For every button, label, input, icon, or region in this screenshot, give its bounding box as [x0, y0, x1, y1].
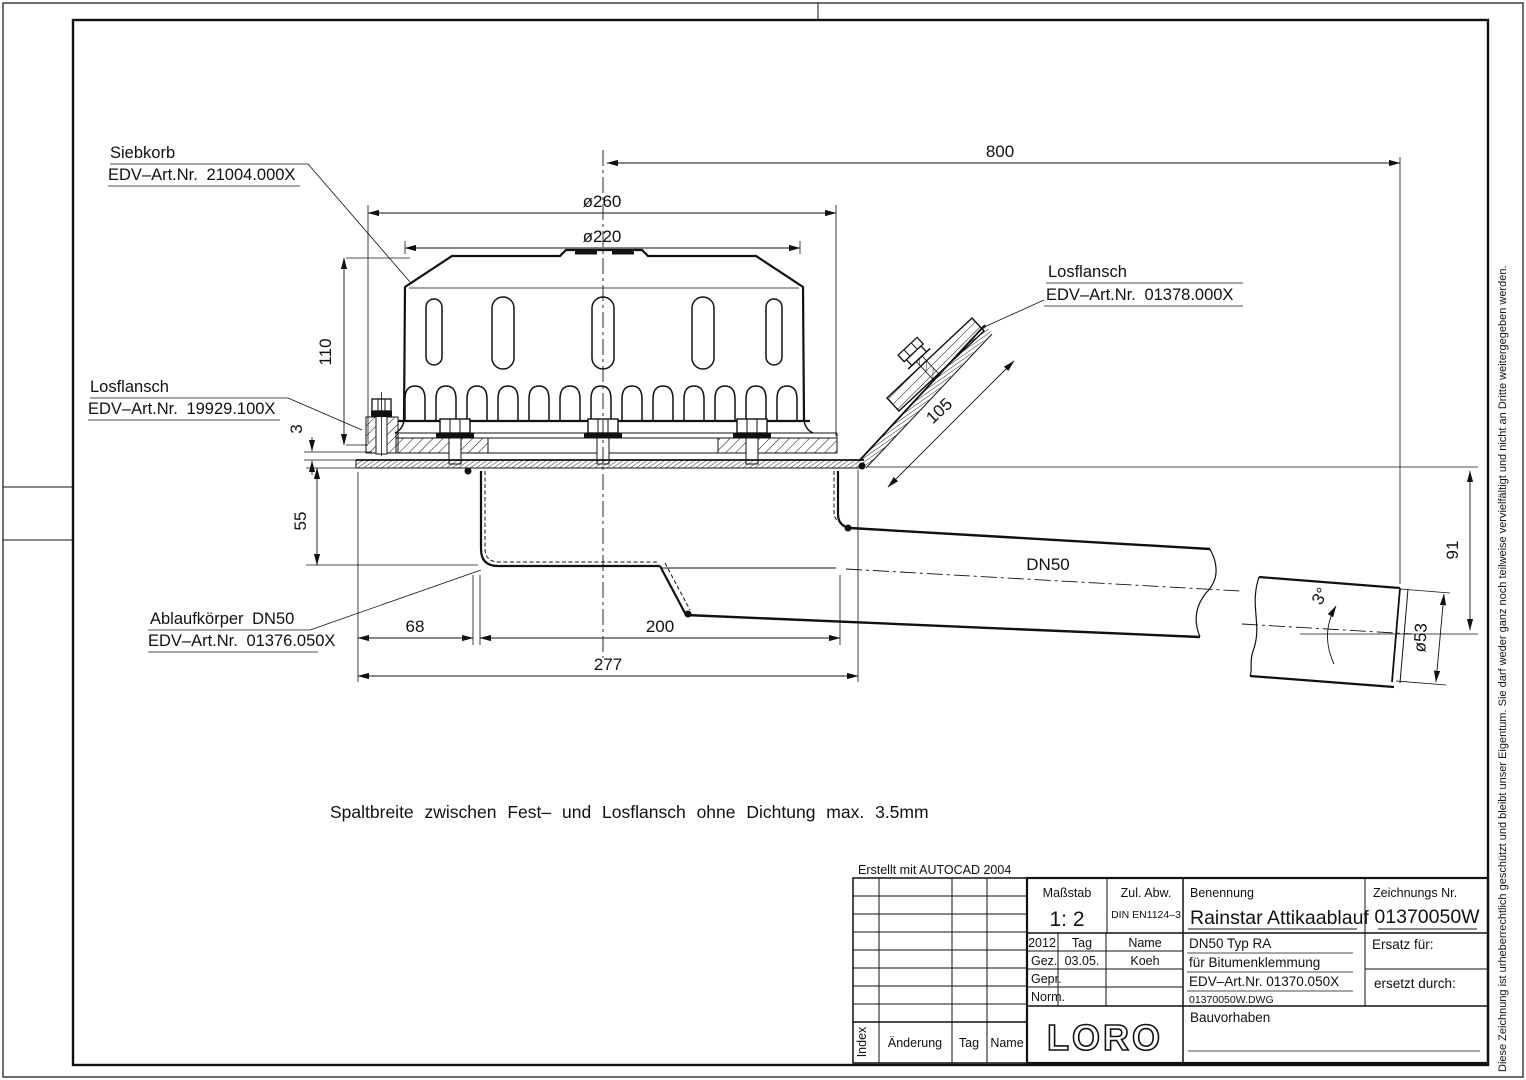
gepr-label: Gepr. [1031, 972, 1062, 986]
label-losflansch-left-name: Losflansch [90, 378, 169, 396]
title-block: Erstellt mit AUTOCAD 2004 Index Änderung… [853, 863, 1488, 1063]
approval-year: 2012 [1028, 936, 1056, 950]
rev-col-name: Name [990, 1036, 1023, 1050]
dim-91: 91 [1443, 541, 1462, 560]
label-losflansch-left: Losflansch EDV–Art.Nr. 19929.100X [88, 378, 362, 430]
dim-200: 200 [646, 617, 674, 636]
label-siebkorb: Siebkorb EDV–Art.Nr. 21004.000X [108, 144, 410, 282]
label-ablaufkoerper-artnr: EDV–Art.Nr. 01376.050X [148, 632, 335, 650]
label-losflansch-right-name: Losflansch [1048, 263, 1127, 281]
losflansch-strip [887, 318, 984, 411]
clamp-bolt-left [366, 392, 398, 456]
ersetzt-durch-label: ersetzt durch: [1374, 976, 1456, 991]
created-with-note: Erstellt mit AUTOCAD 2004 [858, 863, 1011, 877]
gez-date: 03.05. [1065, 954, 1100, 968]
label-losflansch-right: Losflansch EDV–Art.Nr. 01378.000X [982, 263, 1243, 328]
label-losflansch-right-artnr: EDV–Art.Nr. 01378.000X [1046, 286, 1233, 304]
dim-110: 110 [316, 338, 335, 365]
roof-deck [356, 460, 864, 468]
benennung-value: Rainstar Attikaablauf [1190, 907, 1369, 929]
revision-table: Index Änderung Tag Name [853, 878, 1027, 1063]
drawing-sheet: 800 ø260 ø220 110 3 55 68 2 [0, 0, 1526, 1080]
norm-label: Norm. [1031, 990, 1065, 1004]
part-labels: Siebkorb EDV–Art.Nr. 21004.000X Losflans… [88, 144, 1243, 822]
label-losflansch-left-artnr: EDV–Art.Nr. 19929.100X [88, 400, 275, 418]
siebkorb-outline [395, 250, 813, 433]
pipe-end-detail [1242, 577, 1478, 687]
rev-col-index: Index [855, 1026, 869, 1057]
zul-abw-label: Zul. Abw. [1121, 886, 1172, 900]
massstab-label: Maßstab [1043, 886, 1092, 900]
label-ablaufkoerper: Ablaufkörper DN50 EDV–Art.Nr. 01376.050X [148, 570, 481, 652]
zeichnungsnr-value: 01370050W [1374, 906, 1480, 928]
approval-col-name: Name [1128, 936, 1161, 950]
ablaufkoerper-body [465, 463, 866, 618]
dimensions: 800 ø260 ø220 110 3 55 68 2 [287, 142, 1478, 685]
parapet-wall [859, 325, 992, 468]
pipe-label-dn50: DN50 [1026, 555, 1069, 574]
siebkorb-slots [426, 297, 782, 369]
dim-53: ø53 [1410, 623, 1431, 653]
pipe-dn50 [686, 528, 1240, 637]
gez-name: Koeh [1130, 954, 1159, 968]
dim-3: 3 [287, 424, 306, 433]
label-siebkorb-name: Siebkorb [110, 144, 175, 162]
loro-logo: LORO [1047, 1017, 1163, 1058]
dim-277: 277 [594, 655, 622, 674]
dim-55: 55 [291, 512, 310, 531]
approval-col-tag: Tag [1072, 936, 1092, 950]
dim-260: ø260 [583, 192, 622, 211]
rev-col-tag: Tag [959, 1036, 979, 1050]
dim-220: ø220 [583, 227, 622, 246]
gap-note: Spaltbreite zwischen Fest– und Losflansc… [330, 802, 929, 822]
zul-abw-value: DIN EN1124–3 [1111, 909, 1181, 921]
dim-68: 68 [406, 617, 425, 636]
product-type: DN50 Typ RA [1189, 936, 1271, 951]
zeichnungsnr-label: Zeichnungs Nr. [1373, 886, 1457, 900]
dim-800: 800 [986, 142, 1014, 161]
label-siebkorb-artnr: EDV–Art.Nr. 21004.000X [108, 166, 295, 184]
copyright-notice: Diese Zeichnung ist urheberrechtlich ges… [1497, 265, 1509, 1072]
siebkorb-arches [405, 386, 797, 421]
product-artnr: EDV–Art.Nr. 01370.050X [1189, 974, 1339, 989]
massstab-value: 1: 2 [1049, 908, 1084, 931]
cad-drawing-canvas: 800 ø260 ø220 110 3 55 68 2 [0, 0, 1526, 1080]
product-usage: für Bitumenklemmung [1189, 955, 1320, 970]
label-ablaufkoerper-name: Ablaufkörper DN50 [150, 610, 294, 628]
gez-label: Gez. [1031, 954, 1057, 968]
ersatz-fuer-label: Ersatz für: [1372, 937, 1434, 952]
benennung-label: Benennung [1190, 886, 1254, 900]
dwg-filename: 01370050W.DWG [1189, 994, 1274, 1006]
dim-angle-3deg: 3° [1308, 584, 1333, 608]
bauvorhaben-label: Bauvorhaben [1190, 1010, 1270, 1025]
rev-col-aenderung: Änderung [888, 1036, 942, 1050]
